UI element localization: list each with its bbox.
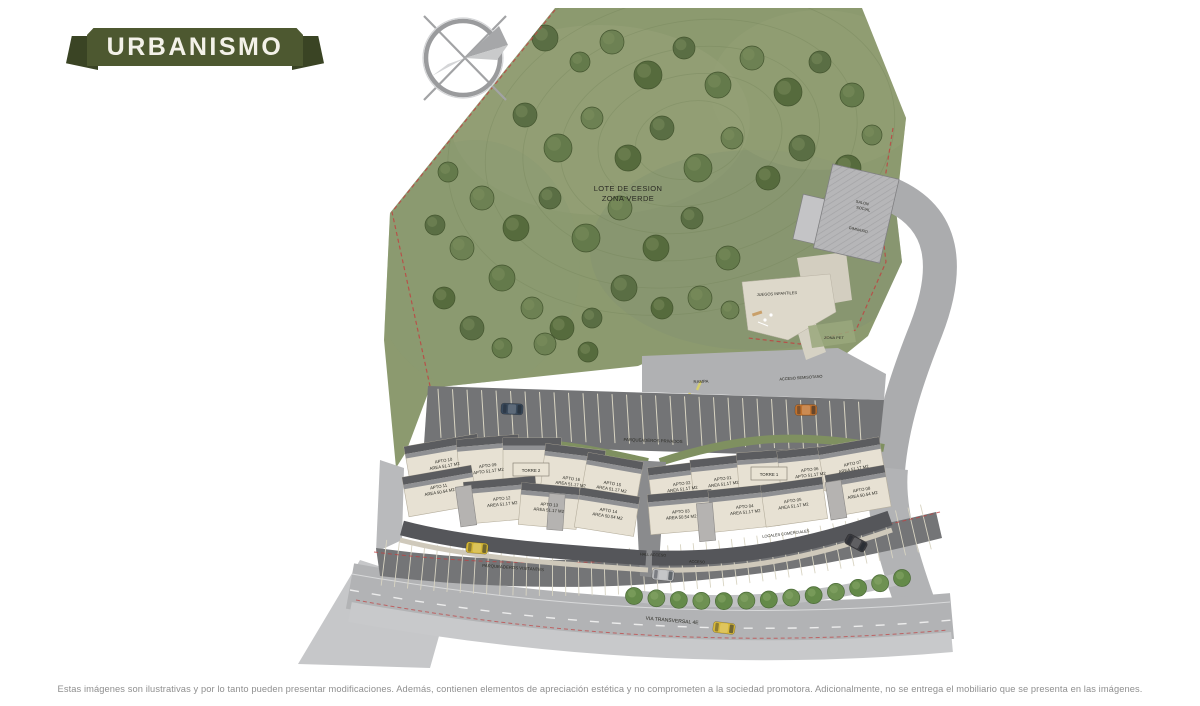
tree-icon bbox=[503, 215, 529, 241]
tree-icon bbox=[492, 338, 512, 358]
street-tree-icon bbox=[693, 592, 710, 609]
tree-icon bbox=[433, 287, 455, 309]
tree-icon bbox=[756, 166, 780, 190]
tree-icon bbox=[684, 154, 712, 182]
label-zona-verde: ZONA VERDE bbox=[602, 194, 654, 203]
label-torre-2: TORRE 2 bbox=[522, 468, 541, 473]
label-lote-de-cesion: LOTE DE CESION bbox=[594, 184, 663, 193]
tree-icon bbox=[578, 342, 598, 362]
street-tree-icon bbox=[894, 570, 911, 587]
urbanismo-badge: URBANISMO bbox=[66, 26, 324, 74]
tree-icon bbox=[716, 246, 740, 270]
tree-icon bbox=[450, 236, 474, 260]
tree-icon bbox=[425, 215, 445, 235]
legal-disclaimer: Estas imágenes son ilustrativas y por lo… bbox=[0, 684, 1200, 694]
tree-icon bbox=[688, 286, 712, 310]
car-icon bbox=[501, 403, 524, 415]
tree-icon bbox=[809, 51, 831, 73]
tree-icon bbox=[774, 78, 802, 106]
street-tree-icon bbox=[738, 592, 755, 609]
stair-core bbox=[696, 502, 715, 541]
street-tree-icon bbox=[850, 579, 867, 596]
tree-icon bbox=[539, 187, 561, 209]
tree-icon bbox=[534, 333, 556, 355]
tree-icon bbox=[582, 308, 602, 328]
car-icon bbox=[795, 405, 817, 416]
street-tree-icon bbox=[670, 591, 687, 608]
tree-icon bbox=[673, 37, 695, 59]
street-tree-icon bbox=[805, 587, 822, 604]
tree-icon bbox=[572, 224, 600, 252]
tree-icon bbox=[651, 297, 673, 319]
tree-icon bbox=[460, 316, 484, 340]
tree-icon bbox=[600, 30, 624, 54]
ribbon-bar: URBANISMO bbox=[87, 28, 303, 66]
tree-icon bbox=[521, 297, 543, 319]
tree-icon bbox=[789, 135, 815, 161]
tree-icon bbox=[634, 61, 662, 89]
tree-icon bbox=[489, 265, 515, 291]
badge-label: URBANISMO bbox=[107, 33, 284, 62]
tree-icon bbox=[643, 235, 669, 261]
tree-icon bbox=[513, 103, 537, 127]
tree-icon bbox=[581, 107, 603, 129]
tree-icon bbox=[705, 72, 731, 98]
car-icon bbox=[466, 542, 489, 555]
street-tree-icon bbox=[715, 593, 732, 610]
tree-icon bbox=[862, 125, 882, 145]
tree-icon bbox=[532, 25, 558, 51]
label-rampa: RAMPA bbox=[693, 379, 708, 385]
street-tree-icon bbox=[626, 588, 643, 605]
street-tree-icon bbox=[783, 589, 800, 606]
tree-icon bbox=[840, 83, 864, 107]
tree-icon bbox=[570, 52, 590, 72]
tree-icon bbox=[615, 145, 641, 171]
car-icon bbox=[651, 568, 674, 581]
tree-icon bbox=[721, 301, 739, 319]
street-tree-icon bbox=[648, 590, 665, 607]
car-icon bbox=[712, 621, 735, 635]
tree-icon bbox=[681, 207, 703, 229]
tree-icon bbox=[611, 275, 637, 301]
label-torre-1: TORRE 1 bbox=[760, 472, 779, 477]
tree-icon bbox=[438, 162, 458, 182]
label-zona-pet: ZONA PET bbox=[824, 335, 844, 340]
street-tree-icon bbox=[872, 575, 889, 592]
tree-icon bbox=[470, 186, 494, 210]
street-tree-icon bbox=[760, 591, 777, 608]
tree-icon bbox=[550, 316, 574, 340]
west-road bbox=[376, 460, 404, 552]
site-plan: LOTE DE CESION ZONA VERDE SALON SOCIAL G… bbox=[0, 0, 1200, 706]
tree-icon bbox=[740, 46, 764, 70]
tree-icon bbox=[544, 134, 572, 162]
tree-icon bbox=[650, 116, 674, 140]
label-acceso: ACCESO bbox=[689, 560, 705, 565]
street-tree-icon bbox=[827, 583, 844, 600]
tree-icon bbox=[721, 127, 743, 149]
ramp-road bbox=[642, 348, 886, 400]
urbanism-masterplan-page: URBANISMO bbox=[0, 0, 1200, 706]
